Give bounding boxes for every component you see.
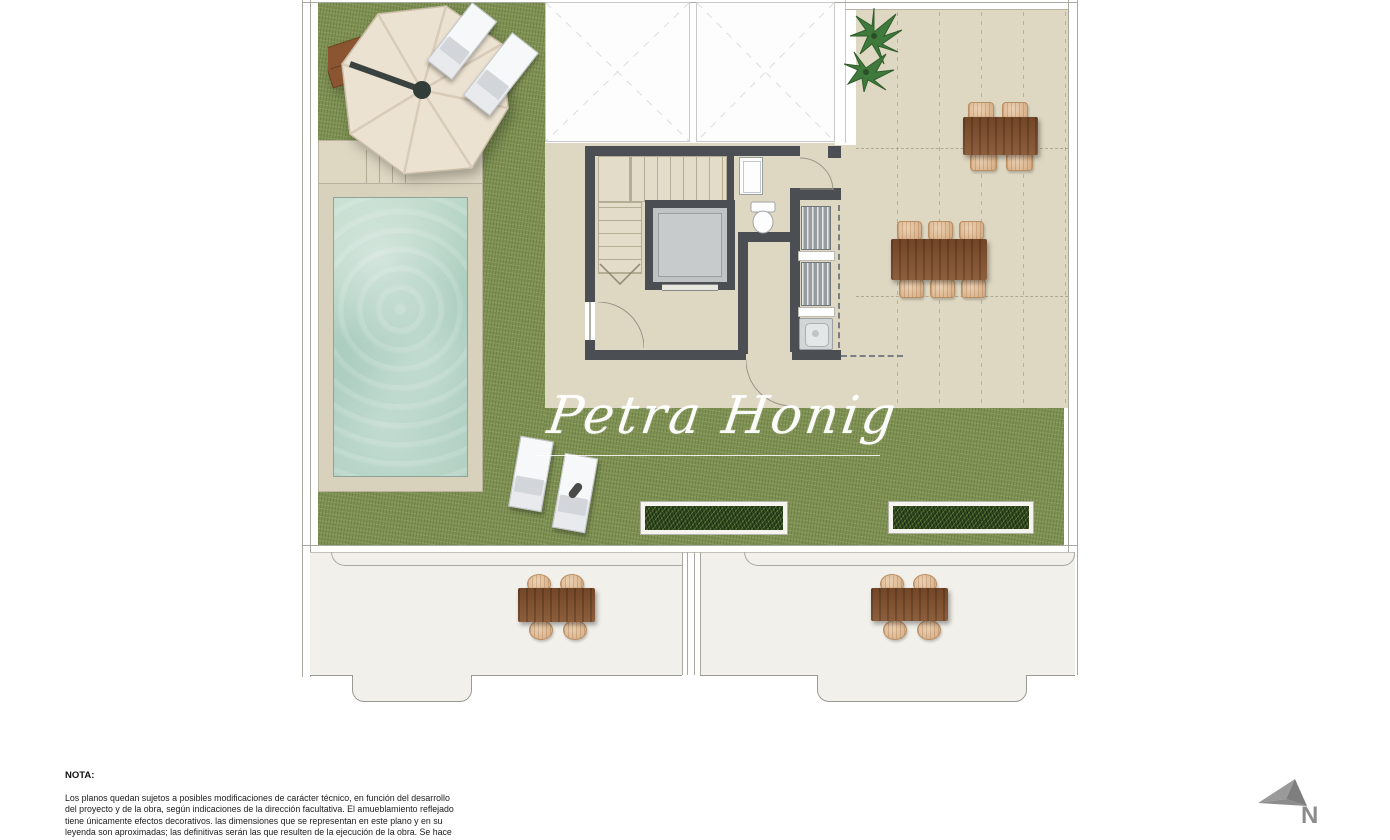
lounger-pad bbox=[477, 69, 510, 100]
dining-table-6-seats bbox=[891, 239, 987, 280]
stair-landing bbox=[598, 156, 630, 202]
corridor-wall bbox=[738, 242, 748, 354]
planter-box bbox=[641, 502, 787, 534]
door-arc-room bbox=[598, 302, 644, 348]
skylight-void-right bbox=[696, 2, 835, 142]
terrace-chair bbox=[917, 620, 941, 640]
utility-unit bbox=[801, 206, 831, 250]
elevator-shaft bbox=[645, 200, 735, 290]
core-wall-top bbox=[585, 146, 800, 156]
note-line: del proyecto y de la obra, según indicac… bbox=[65, 804, 495, 815]
washbasin bbox=[739, 157, 763, 195]
core-wall-left-upper bbox=[585, 146, 595, 302]
planter-box bbox=[889, 502, 1033, 533]
terrace-notch-right bbox=[817, 675, 1027, 702]
potted-plant bbox=[844, 6, 908, 92]
washing-machine bbox=[799, 318, 833, 350]
washbasin-bowl bbox=[743, 161, 761, 193]
closet-shelf bbox=[798, 307, 835, 317]
north-arrow-label: N bbox=[1301, 802, 1318, 830]
bag-on-lounger bbox=[567, 481, 584, 499]
terrace-notch-left bbox=[352, 675, 472, 702]
terrace-divider-line bbox=[694, 552, 695, 675]
closet-open-edge-dashed bbox=[838, 205, 840, 348]
watermark-underline bbox=[536, 455, 880, 456]
door-arc-top bbox=[800, 156, 836, 192]
canopy-outline-left bbox=[331, 552, 682, 566]
terrace-chair bbox=[883, 620, 907, 640]
wall-opening-line bbox=[589, 302, 591, 340]
plan-outline-right-outer bbox=[1077, 0, 1078, 675]
stair-flight-top bbox=[630, 156, 727, 202]
skylight-cross-lines bbox=[546, 3, 689, 141]
canopy-outline-right bbox=[744, 552, 1075, 566]
dining-chair bbox=[928, 221, 953, 240]
terrace-divider-line bbox=[700, 552, 701, 675]
washer-door-dot bbox=[812, 330, 819, 337]
skylight-void-left bbox=[545, 2, 690, 142]
parasol-hub bbox=[413, 81, 431, 99]
floor-plan-page: Petra Honig NOTA: Los planos quedan suje… bbox=[0, 0, 1390, 840]
skylight-cross-lines bbox=[697, 3, 834, 141]
closet-shelf bbox=[798, 251, 835, 261]
dining-chair bbox=[897, 221, 922, 240]
terrace-divider-line bbox=[682, 552, 683, 675]
terrace-chair bbox=[563, 620, 587, 640]
watermark-text: Petra Honig bbox=[544, 386, 902, 446]
stair-direction-arrow bbox=[598, 262, 642, 288]
swimming-pool-water bbox=[333, 197, 468, 477]
note-line: leyenda son aproximadas; las definitivas… bbox=[65, 827, 495, 838]
terrace-table-4-seats bbox=[518, 588, 595, 622]
note-paragraph: Los planos quedan sujetos a posibles mod… bbox=[65, 793, 495, 838]
note-line: tiene únicamente efectos decorativos. la… bbox=[65, 816, 495, 827]
core-wall-bottom-left bbox=[585, 350, 746, 360]
dining-chair bbox=[930, 279, 955, 298]
dining-chair bbox=[959, 221, 984, 240]
dining-table-4-seats bbox=[963, 117, 1038, 155]
lounger-pad bbox=[439, 36, 469, 64]
elevator-cab bbox=[658, 213, 722, 277]
utility-unit bbox=[801, 262, 831, 306]
note-title: NOTA: bbox=[65, 770, 94, 781]
dining-chair bbox=[899, 279, 924, 298]
elevator-door bbox=[662, 284, 718, 291]
terrace-chair bbox=[529, 620, 553, 640]
terrace-table-4-seats bbox=[871, 588, 948, 621]
plan-outline-left-outer bbox=[302, 0, 303, 677]
lower-terrace-left bbox=[310, 552, 682, 676]
toilet bbox=[748, 201, 780, 235]
note-line: Los planos quedan sujetos a posibles mod… bbox=[65, 793, 495, 804]
terrace-upper-line bbox=[302, 545, 1077, 546]
terrace-divider-line bbox=[687, 552, 688, 675]
lounger-pad bbox=[514, 476, 544, 496]
boundary-dashed-line bbox=[841, 355, 903, 357]
dining-chair bbox=[961, 279, 986, 298]
